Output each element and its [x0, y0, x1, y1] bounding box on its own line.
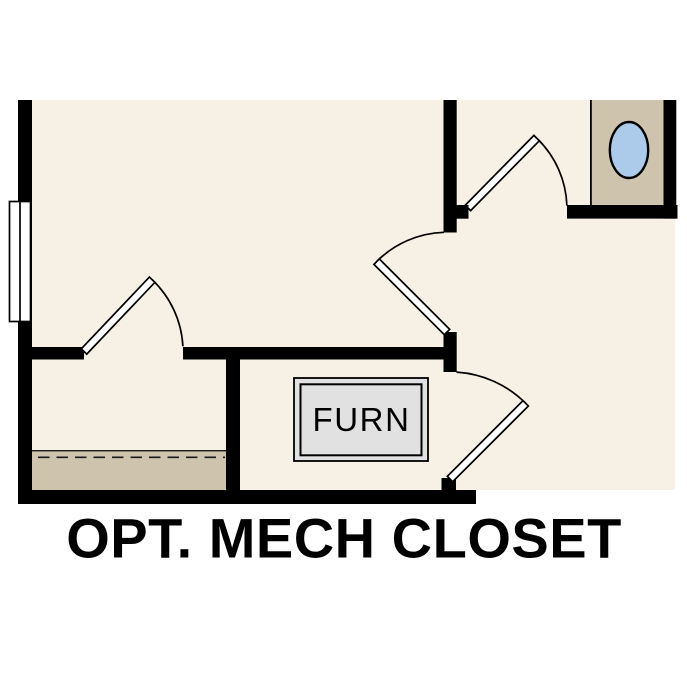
svg-text:FURN: FURN — [312, 401, 410, 438]
svg-text:OPT. MECH CLOSET: OPT. MECH CLOSET — [66, 507, 622, 570]
